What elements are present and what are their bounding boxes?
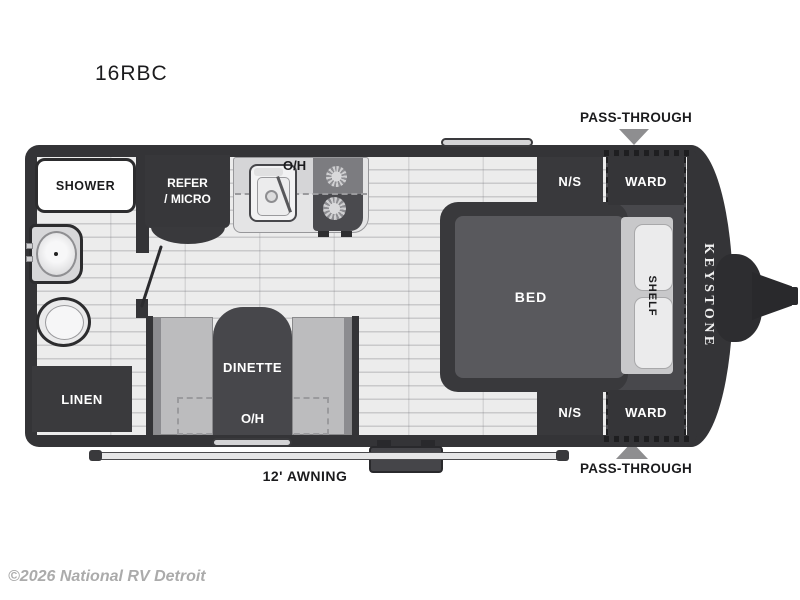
window-top — [441, 138, 533, 147]
faucet-tab — [26, 243, 33, 249]
linen-cabinet: LINEN — [32, 366, 132, 432]
stove-burner-icon — [323, 197, 346, 220]
dinette-overhead-label: O/H — [213, 411, 292, 426]
refrigerator-microwave: REFER / MICRO — [145, 155, 230, 228]
pass-through-hatch-top — [604, 150, 690, 156]
dinette-bench-back-left — [146, 316, 153, 435]
hitch-tongue — [752, 272, 792, 320]
awning-label: 12' AWNING — [240, 468, 370, 484]
wardrobe-bottom: WARD — [608, 390, 684, 435]
refer-label-line2: / MICRO — [164, 192, 211, 208]
shower: SHOWER — [35, 158, 136, 213]
faucet-tab — [26, 256, 33, 262]
watermark: ©2026 National RV Detroit — [8, 568, 206, 586]
pass-through-label-top: PASS-THROUGH — [560, 110, 712, 125]
dinette-label: DINETTE — [213, 360, 292, 375]
shelf-label: SHELF — [646, 275, 658, 316]
dinette-bench-back-right — [352, 316, 359, 435]
floorplan-page: 16RBC ©2026 National RV Detroit PASS-THR… — [0, 0, 800, 600]
stove-foot — [341, 231, 352, 237]
pass-through-label-bottom: PASS-THROUGH — [560, 461, 712, 476]
kitchen-overhead-label: O/H — [283, 158, 306, 173]
pass-through-arrow-down-icon — [619, 129, 649, 145]
awning-bar — [92, 452, 569, 460]
awning-end-cap-left — [89, 450, 102, 461]
stove-burner-icon — [326, 166, 347, 187]
window-bottom — [212, 438, 292, 447]
floorplan-title: 16RBC — [95, 62, 168, 86]
pass-through-hatch-bottom — [604, 436, 690, 442]
nightstand-bottom: N/S — [537, 390, 603, 435]
brand-logo: KEYSTONE — [700, 243, 716, 349]
awning-end-cap-right — [556, 450, 569, 461]
sink-drain — [54, 252, 58, 256]
kitchen-sink-drain — [265, 190, 278, 203]
stove-foot — [318, 231, 329, 237]
hitch-coupler — [788, 287, 798, 305]
refer-label-line1: REFER — [164, 176, 211, 192]
wardrobe-top: WARD — [608, 157, 684, 205]
nightstand-top: N/S — [537, 157, 603, 205]
bed-label: BED — [455, 216, 607, 378]
toilet-seat — [45, 305, 84, 340]
